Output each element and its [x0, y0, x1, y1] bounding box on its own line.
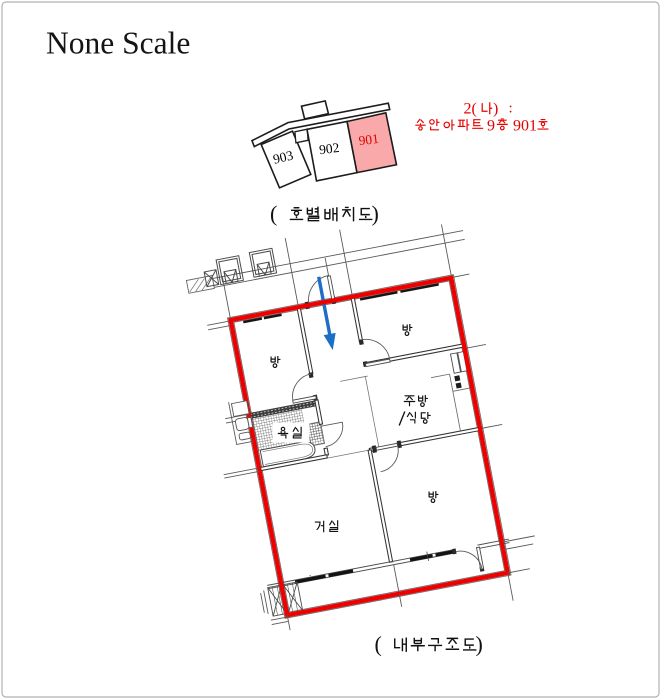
svg-text:(: ( [270, 201, 277, 226]
svg-text:(: ( [375, 632, 382, 657]
svg-text:901: 901 [513, 118, 537, 135]
svg-text:902: 902 [318, 140, 340, 157]
svg-text:9: 9 [487, 118, 495, 135]
svg-text:): ) [372, 201, 379, 226]
svg-text::: : [509, 101, 513, 117]
svg-text:2(: 2( [464, 101, 477, 118]
svg-text:None Scale: None Scale [46, 26, 190, 61]
svg-text:901: 901 [358, 131, 380, 148]
svg-text:): ) [493, 101, 498, 118]
svg-text:): ) [476, 632, 483, 657]
